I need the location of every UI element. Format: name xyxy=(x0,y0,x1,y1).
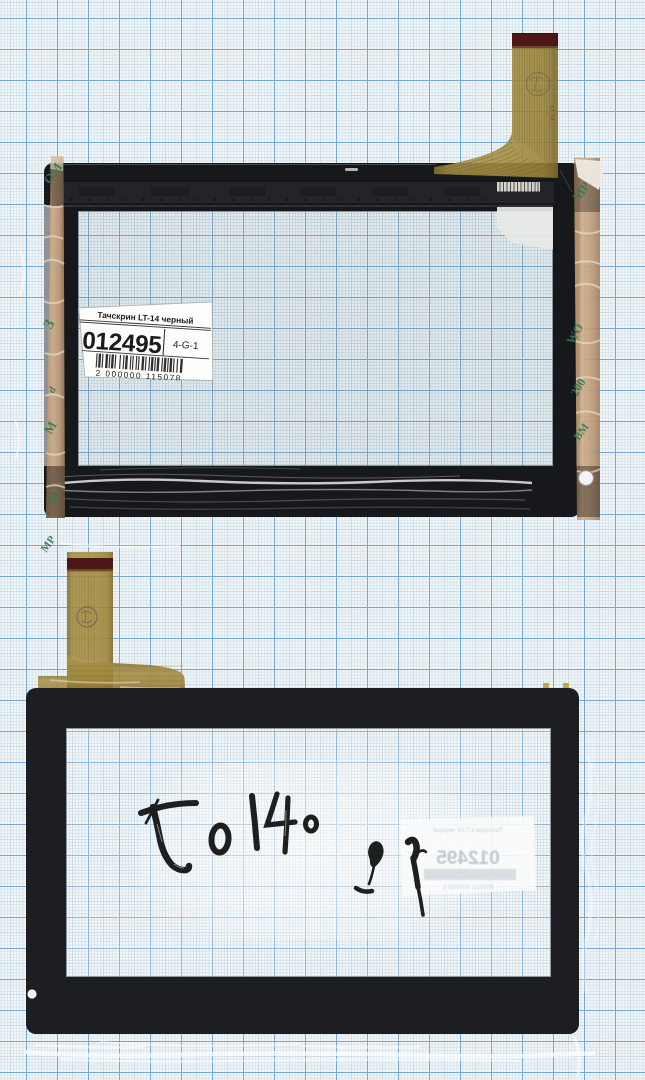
svg-text:012495: 012495 xyxy=(81,327,162,359)
svg-text:2 000000 115078: 2 000000 115078 xyxy=(443,884,494,891)
svg-text:4-G-1: 4-G-1 xyxy=(173,340,200,353)
svg-text:012495: 012495 xyxy=(436,848,500,869)
svg-text:Тачскрин LT-14 черный: Тачскрин LT-14 черный xyxy=(433,826,503,834)
svg-text:LT-14: LT-14 xyxy=(548,106,555,122)
